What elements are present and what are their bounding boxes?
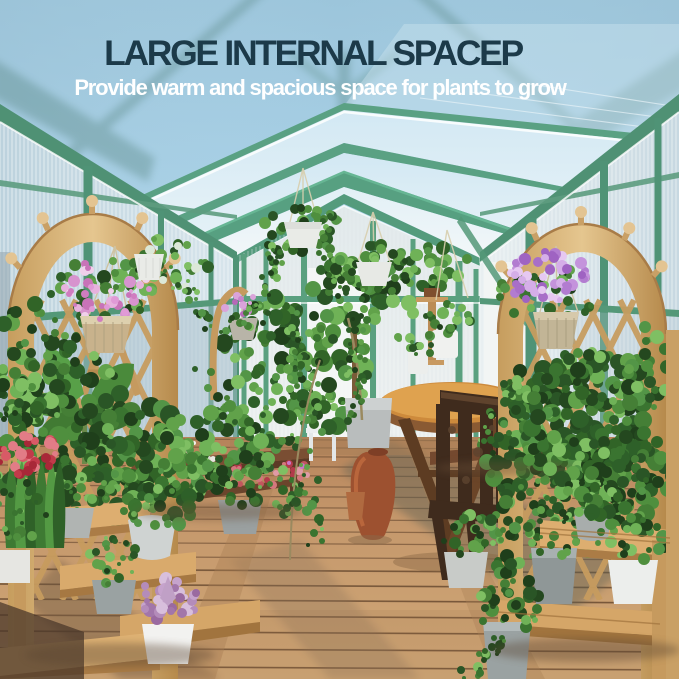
svg-text:Provide warm and spacious spac: Provide warm and spacious space for plan… [74, 75, 567, 100]
svg-text:LARGE INTERNAL SPACEP: LARGE INTERNAL SPACEP [104, 33, 523, 73]
